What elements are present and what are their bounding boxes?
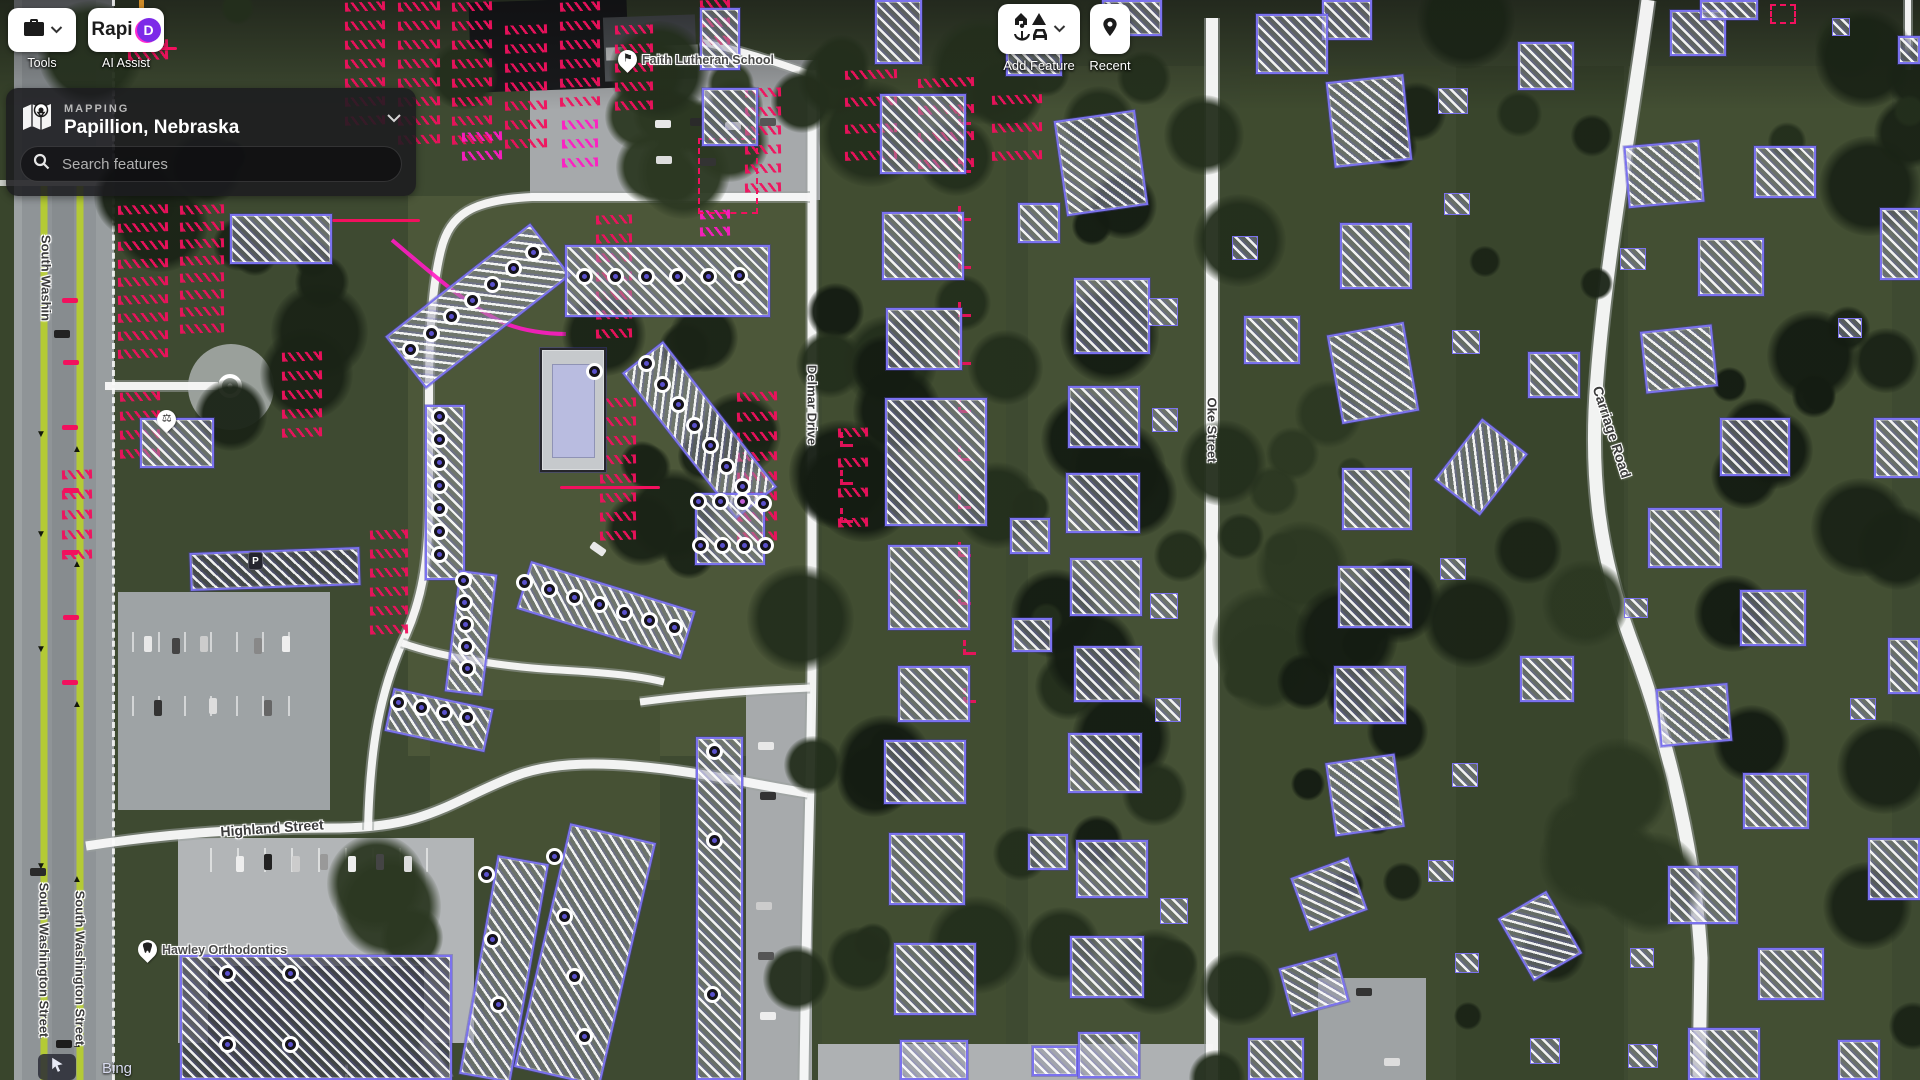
vertex-node[interactable] (594, 599, 605, 610)
tooth-pin-icon[interactable] (134, 936, 161, 963)
ai-detected-feature[interactable] (180, 221, 224, 232)
building-footprint[interactable] (1012, 618, 1052, 652)
building-footprint[interactable] (1832, 18, 1850, 36)
ai-detected-feature[interactable] (118, 258, 168, 269)
ai-detected-feature[interactable] (345, 77, 385, 87)
vertex-node[interactable] (285, 968, 296, 979)
ai-detected-outline[interactable] (698, 138, 758, 214)
building-footprint[interactable] (1874, 418, 1920, 478)
ai-detected-feature[interactable] (118, 312, 168, 323)
ai-detected-feature[interactable] (838, 487, 868, 497)
building-footprint[interactable] (1070, 558, 1142, 616)
vertex-node[interactable] (721, 461, 732, 472)
building-footprint[interactable] (1700, 0, 1758, 20)
ai-detected-feature[interactable] (180, 272, 224, 283)
stall-line (372, 848, 374, 872)
building-footprint[interactable] (1656, 683, 1733, 747)
recent-button[interactable] (1090, 4, 1130, 54)
building-footprint[interactable] (1028, 834, 1068, 870)
ai-detected-feature[interactable] (398, 1, 440, 11)
ai-detected-feature[interactable] (282, 427, 322, 437)
building-footprint[interactable] (894, 943, 976, 1015)
building-footprint[interactable] (565, 245, 770, 317)
ai-detected-mark[interactable] (963, 640, 976, 655)
ai-suggested-feature[interactable] (562, 119, 598, 129)
vertex-node[interactable] (559, 911, 570, 922)
vertex-node[interactable] (644, 615, 655, 626)
building-footprint[interactable] (1838, 1040, 1880, 1080)
building-footprint[interactable] (1066, 473, 1140, 533)
building-footprint[interactable] (695, 493, 765, 565)
ai-detected-feature[interactable] (505, 43, 547, 53)
poi[interactable]: ⚖ (157, 410, 176, 429)
vertex-node[interactable] (481, 869, 492, 880)
building-footprint[interactable] (1338, 566, 1412, 628)
ai-detected-mark[interactable] (62, 298, 78, 303)
vertex-node[interactable] (405, 344, 416, 355)
ai-detected-outline[interactable] (1770, 4, 1796, 24)
rapid-button[interactable]: Rapi D (88, 8, 164, 52)
stall-line (132, 696, 134, 716)
ai-detected-feature[interactable] (118, 240, 168, 251)
vertex-node[interactable] (285, 1039, 296, 1050)
vertex-node[interactable] (462, 712, 473, 723)
ai-detected-feature[interactable] (118, 330, 168, 341)
ai-detected-line[interactable] (560, 486, 660, 489)
ai-detected-feature[interactable] (370, 624, 408, 634)
building-footprint[interactable] (1325, 753, 1405, 836)
vertex-node[interactable] (760, 540, 771, 551)
building-footprint[interactable] (180, 955, 452, 1080)
ai-detected-mark[interactable] (62, 550, 78, 555)
building-footprint[interactable] (1342, 468, 1412, 530)
vertex-node[interactable] (737, 496, 748, 507)
ai-suggested-feature[interactable] (562, 157, 598, 167)
building-footprint[interactable] (1624, 598, 1648, 618)
ai-detected-mark[interactable] (840, 508, 853, 523)
ai-detected-feature[interactable] (282, 351, 322, 361)
ai-detected-mark[interactable] (63, 615, 79, 620)
vertex-node[interactable] (434, 526, 445, 537)
attribution-button[interactable] (38, 1054, 76, 1080)
vertex-node[interactable] (705, 440, 716, 451)
ai-suggested-feature[interactable] (462, 131, 502, 141)
building-footprint[interactable] (1623, 140, 1704, 208)
vertex-node[interactable] (641, 271, 652, 282)
ai-detected-feature[interactable] (505, 62, 547, 72)
vertex-node[interactable] (669, 622, 680, 633)
vertex-node[interactable] (439, 707, 450, 718)
ai-detected-mark[interactable] (62, 425, 78, 430)
vertex-node[interactable] (737, 481, 748, 492)
ai-detected-feature[interactable] (398, 20, 440, 30)
ai-detected-feature[interactable] (120, 391, 160, 401)
vertex-node[interactable] (467, 295, 478, 306)
vertex-node[interactable] (544, 584, 555, 595)
vertex-node[interactable] (693, 496, 704, 507)
building-footprint[interactable] (1455, 953, 1479, 973)
building-footprint[interactable] (1068, 386, 1140, 448)
car (200, 636, 208, 652)
ai-detected-feature[interactable] (560, 39, 600, 49)
ai-detected-feature[interactable] (345, 1, 385, 11)
building-footprint[interactable] (425, 405, 465, 580)
ai-detected-feature[interactable] (560, 96, 600, 106)
building-footprint[interactable] (1628, 1044, 1658, 1068)
search-input[interactable] (60, 155, 360, 174)
car (1384, 1058, 1400, 1066)
vertex-node[interactable] (695, 540, 706, 551)
stall-line (158, 632, 160, 652)
vertex-node[interactable] (641, 358, 652, 369)
building-footprint[interactable] (1152, 408, 1178, 432)
chevron-down-icon[interactable] (386, 110, 402, 128)
vertex-node[interactable] (487, 934, 498, 945)
building-footprint[interactable] (1078, 1032, 1140, 1078)
building-footprint[interactable] (880, 94, 966, 174)
ai-detected-feature[interactable] (180, 306, 224, 317)
ai-detected-feature[interactable] (452, 115, 492, 125)
building-footprint[interactable] (1888, 638, 1920, 694)
building-footprint[interactable] (882, 212, 964, 280)
building-footprint[interactable] (1520, 656, 1574, 702)
building-footprint[interactable] (1068, 733, 1142, 793)
ai-detected-feature[interactable] (596, 233, 632, 243)
ai-detected-feature[interactable] (345, 58, 385, 68)
building-footprint[interactable] (1530, 1038, 1560, 1064)
delmar-drive[interactable] (804, 70, 812, 1080)
vertex-node[interactable] (579, 1031, 590, 1042)
ai-detected-feature[interactable] (345, 39, 385, 49)
vertex-node[interactable] (579, 271, 590, 282)
building-footprint[interactable] (1076, 840, 1148, 898)
building-footprint[interactable] (885, 398, 987, 526)
building-footprint[interactable] (1620, 248, 1646, 270)
ai-detected-feature[interactable] (62, 529, 92, 539)
building-footprint[interactable] (1428, 860, 1454, 882)
building-footprint[interactable] (1018, 203, 1060, 243)
search-box[interactable] (20, 146, 402, 182)
building-footprint[interactable] (1698, 238, 1764, 296)
vertex-node[interactable] (758, 498, 769, 509)
vertex-node[interactable] (487, 279, 498, 290)
map-canvas[interactable]: Tools Rapi D AI Assist Add Feature Recen… (0, 0, 1920, 1080)
ai-suggested-feature[interactable] (562, 138, 598, 148)
ai-suggested-feature[interactable] (700, 226, 730, 236)
ai-detected-feature[interactable] (615, 24, 653, 34)
vertex-node[interactable] (709, 835, 720, 846)
building-footprint[interactable] (1074, 646, 1142, 702)
vertex-node[interactable] (709, 746, 720, 757)
parking-badge[interactable]: P (248, 552, 263, 570)
ai-detected-feature[interactable] (505, 138, 547, 148)
vertex-node[interactable] (703, 271, 714, 282)
vertex-node[interactable] (459, 597, 470, 608)
vertex-node[interactable] (493, 999, 504, 1010)
building-footprint[interactable] (1232, 236, 1258, 260)
vertex-node[interactable] (222, 1039, 233, 1050)
building-footprint[interactable] (1452, 330, 1480, 354)
ai-detected-feature[interactable] (992, 94, 1042, 105)
vertex-node[interactable] (434, 549, 445, 560)
ai-detected-feature[interactable] (505, 119, 547, 129)
vertex-node[interactable] (549, 851, 560, 862)
ai-detected-feature[interactable] (398, 39, 440, 49)
ai-detected-feature[interactable] (180, 289, 224, 300)
building-footprint[interactable] (1160, 898, 1188, 924)
feature-type-icons (1013, 11, 1049, 48)
building-footprint[interactable] (696, 737, 743, 1080)
ai-detected-feature[interactable] (452, 20, 492, 30)
building-footprint[interactable] (1326, 74, 1413, 168)
building-footprint[interactable] (1334, 666, 1406, 724)
car (348, 856, 356, 872)
building-footprint[interactable] (1148, 298, 1178, 326)
building-footprint[interactable] (1054, 110, 1149, 216)
building-footprint[interactable] (1327, 322, 1419, 424)
building-footprint[interactable] (1668, 866, 1738, 924)
building-footprint[interactable] (189, 547, 360, 591)
ai-detected-feature[interactable] (560, 58, 600, 68)
car (254, 638, 262, 654)
ai-detected-feature[interactable] (62, 509, 92, 519)
car (209, 698, 217, 714)
ai-detected-feature[interactable] (505, 24, 547, 34)
building-footprint[interactable] (1868, 838, 1920, 900)
ai-detected-feature[interactable] (560, 1, 600, 11)
ai-detected-feature[interactable] (452, 39, 492, 49)
ai-detected-feature[interactable] (180, 238, 224, 249)
building-footprint[interactable] (140, 418, 214, 468)
add-feature-button[interactable] (998, 4, 1080, 54)
vertex-node[interactable] (689, 420, 700, 431)
car (264, 700, 272, 716)
ai-detected-feature[interactable] (370, 605, 408, 615)
building-footprint[interactable] (1758, 948, 1824, 1000)
building-footprint[interactable] (1074, 278, 1150, 354)
ai-detected-feature[interactable] (600, 530, 636, 540)
vertex-node[interactable] (458, 575, 469, 586)
ai-detected-feature[interactable] (600, 473, 636, 483)
building-footprint[interactable] (1648, 508, 1722, 568)
stall-line (236, 696, 238, 716)
building-footprint[interactable] (1438, 88, 1468, 114)
ai-detected-feature[interactable] (596, 214, 632, 224)
car (1356, 988, 1372, 996)
building-footprint[interactable] (1528, 352, 1580, 398)
vertex-node[interactable] (461, 641, 472, 652)
vertex-node[interactable] (460, 619, 471, 630)
vertex-node[interactable] (734, 270, 745, 281)
building-footprint[interactable] (702, 88, 758, 146)
building-footprint[interactable] (1155, 698, 1181, 722)
ai-detected-feature[interactable] (282, 389, 322, 399)
building-footprint[interactable] (1248, 1038, 1304, 1080)
ai-detected-feature[interactable] (370, 567, 408, 577)
car (760, 792, 776, 800)
vertex-node[interactable] (393, 697, 404, 708)
building-footprint[interactable] (1743, 773, 1809, 829)
ai-detected-feature[interactable] (560, 20, 600, 30)
ai-detected-feature[interactable] (62, 469, 92, 479)
building-footprint[interactable] (884, 740, 966, 804)
vertex-node[interactable] (610, 271, 621, 282)
ai-detected-feature[interactable] (180, 323, 224, 334)
vertex-node[interactable] (717, 540, 728, 551)
ai-detected-mark[interactable] (63, 488, 79, 493)
ai-detected-feature[interactable] (180, 255, 224, 266)
ai-detected-feature[interactable] (398, 77, 440, 87)
building-footprint[interactable] (1850, 698, 1876, 720)
vertex-node[interactable] (426, 328, 437, 339)
vertex-node[interactable] (707, 989, 718, 1000)
building-footprint[interactable] (1010, 518, 1050, 554)
vertex-node[interactable] (672, 271, 683, 282)
building-footprint[interactable] (1898, 36, 1920, 64)
building-footprint[interactable] (886, 308, 962, 370)
ai-detected-feature[interactable] (452, 1, 492, 11)
ai-detected-feature[interactable] (118, 294, 168, 305)
building-footprint[interactable] (1688, 1028, 1760, 1080)
building-footprint[interactable] (1518, 42, 1574, 90)
ai-detected-feature[interactable] (992, 150, 1042, 161)
building-footprint[interactable] (1150, 593, 1178, 619)
vertex-node[interactable] (508, 263, 519, 274)
vertex-node[interactable] (528, 247, 539, 258)
car (154, 700, 162, 716)
ai-detected-feature[interactable] (615, 81, 653, 91)
vertex-node[interactable] (589, 366, 600, 377)
tools-button[interactable] (8, 8, 76, 52)
building-footprint[interactable] (888, 545, 970, 630)
building-footprint[interactable] (1754, 146, 1816, 198)
ai-detected-feature[interactable] (560, 77, 600, 87)
ai-detected-feature[interactable] (180, 204, 224, 215)
vertex-node[interactable] (673, 399, 684, 410)
building-footprint[interactable] (1070, 936, 1144, 998)
cursor-icon (49, 1056, 65, 1078)
vertex-node[interactable] (434, 480, 445, 491)
ai-detected-feature[interactable] (282, 370, 322, 380)
building-footprint[interactable] (900, 1040, 968, 1080)
vertex-node[interactable] (569, 592, 580, 603)
school-pin-icon[interactable]: ⚑ (614, 46, 641, 73)
ai-detected-line[interactable] (332, 219, 420, 222)
ai-detected-feature[interactable] (737, 411, 777, 421)
ai-detected-feature[interactable] (600, 511, 636, 521)
mapping-panel[interactable]: MAPPING Papillion, Nebraska (6, 88, 416, 196)
ai-detected-feature[interactable] (345, 20, 385, 30)
building-footprint[interactable] (1440, 558, 1466, 580)
ai-detected-feature[interactable] (370, 529, 408, 539)
ai-detected-feature[interactable] (282, 408, 322, 418)
ai-detected-feature[interactable] (452, 58, 492, 68)
ai-detected-mark[interactable] (840, 470, 853, 485)
scales-pin-icon[interactable]: ⚖ (153, 406, 180, 433)
building-footprint[interactable] (1444, 193, 1470, 215)
building-footprint[interactable] (230, 214, 332, 264)
ai-detected-feature[interactable] (370, 586, 408, 596)
ai-detected-feature[interactable] (118, 222, 168, 233)
building-footprint[interactable] (1880, 208, 1920, 280)
ai-detected-feature[interactable] (452, 96, 492, 106)
vertex-node[interactable] (569, 971, 580, 982)
ai-detected-feature[interactable] (398, 58, 440, 68)
building-footprint[interactable] (898, 666, 970, 722)
ai-detected-feature[interactable] (452, 77, 492, 87)
ai-detected-feature[interactable] (505, 81, 547, 91)
tools-button-label: Tools (8, 56, 76, 70)
building-footprint[interactable] (1244, 316, 1300, 364)
poi[interactable]: ⚑Faith Lutheran School (618, 50, 774, 69)
ai-detected-feature[interactable] (992, 122, 1042, 133)
vertex-node[interactable] (739, 540, 750, 551)
building-footprint[interactable] (1256, 14, 1328, 74)
ai-detected-feature[interactable] (370, 548, 408, 558)
panel-title: Papillion, Nebraska (64, 117, 239, 139)
ai-detected-mark[interactable] (62, 680, 78, 685)
ai-detected-feature[interactable] (596, 328, 632, 338)
vertex-node[interactable] (519, 577, 530, 588)
poi-label: Hawley Orthodontics (162, 943, 287, 957)
vertex-node[interactable] (434, 503, 445, 514)
building-footprint[interactable] (1340, 223, 1412, 289)
building-footprint[interactable] (1032, 1046, 1078, 1076)
ai-detected-feature[interactable] (118, 348, 168, 359)
vertex-node[interactable] (434, 457, 445, 468)
ai-detected-feature[interactable] (118, 276, 168, 287)
recent-label: Recent (1076, 58, 1144, 73)
ai-detected-feature[interactable] (737, 431, 777, 441)
ai-detected-feature[interactable] (845, 69, 897, 80)
street-label: Oke Street (1205, 397, 1220, 462)
vertex-node[interactable] (446, 311, 457, 322)
building-footprint[interactable] (1452, 763, 1478, 787)
vertex-node[interactable] (715, 496, 726, 507)
stall-line (184, 632, 186, 652)
vertex-node[interactable] (434, 434, 445, 445)
vertex-node[interactable] (416, 702, 427, 713)
building-footprint[interactable] (889, 833, 965, 905)
building-footprint[interactable] (1630, 948, 1654, 968)
building-footprint[interactable] (875, 0, 922, 64)
poi[interactable]: Hawley Orthodontics (138, 940, 287, 959)
building-footprint[interactable] (1838, 318, 1862, 338)
ai-detected-mark[interactable] (63, 360, 79, 365)
vertex-node[interactable] (462, 663, 473, 674)
ai-detected-mark[interactable] (840, 432, 853, 447)
vertex-node[interactable] (434, 411, 445, 422)
building-footprint[interactable] (1740, 590, 1806, 646)
car (54, 330, 70, 338)
roundabout-center (228, 384, 233, 389)
anchor-icon (1014, 23, 1030, 40)
ai-suggested-feature[interactable] (462, 150, 502, 160)
ai-detected-feature[interactable] (615, 100, 653, 110)
vertex-node[interactable] (222, 968, 233, 979)
ai-detected-feature[interactable] (838, 457, 868, 467)
building-footprint[interactable] (1640, 324, 1718, 393)
ai-detected-feature[interactable] (737, 391, 777, 401)
vertex-node[interactable] (619, 607, 630, 618)
ai-detected-feature[interactable] (505, 100, 547, 110)
ai-detected-feature[interactable] (600, 492, 636, 502)
rapid-logo-d: D (137, 18, 161, 42)
building-footprint[interactable] (1720, 418, 1790, 476)
ai-detected-feature[interactable] (118, 204, 168, 215)
building-footprint[interactable] (1322, 0, 1372, 40)
vertex-node[interactable] (657, 379, 668, 390)
